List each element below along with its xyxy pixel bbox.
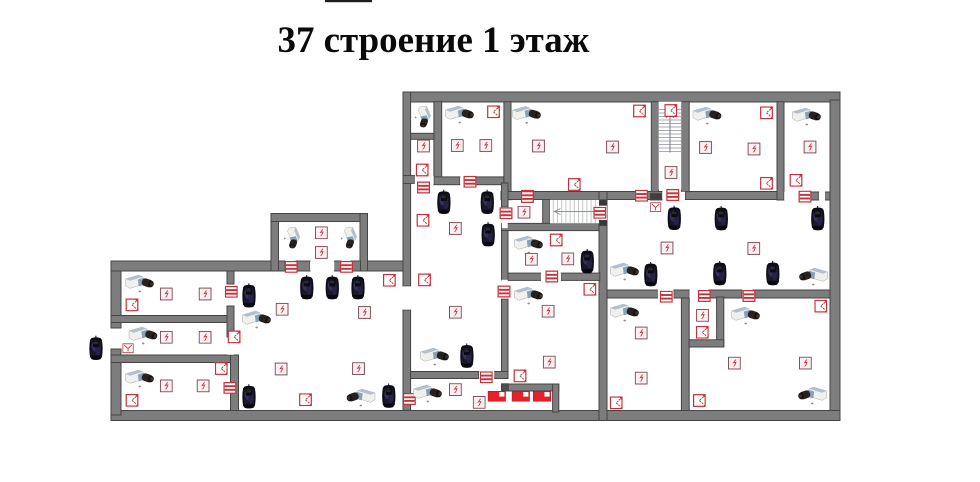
svg-text:37 строение 1 этаж: 37 строение 1 этаж — [278, 19, 590, 60]
